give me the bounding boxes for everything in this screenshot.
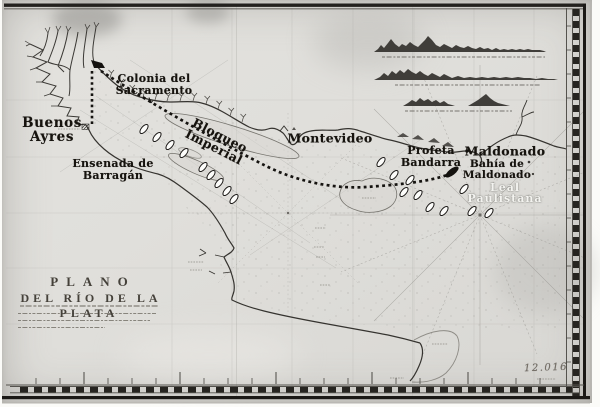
profile-ridge-3a bbox=[403, 98, 455, 106]
scanned-nautical-chart: Colonia del Sacramento Buenos Ayres Ense… bbox=[0, 0, 600, 407]
label-buenos-ayres: Buenos Ayres bbox=[22, 116, 82, 144]
label-ensenada-de-barragan: Ensenada de Barragán bbox=[72, 158, 153, 182]
label-profeta-bandarra: Profeta Bandarra bbox=[401, 145, 461, 169]
cape-shoal-outline bbox=[412, 331, 459, 383]
sheet-number: 12.016 bbox=[524, 362, 568, 375]
label-colonia-del-sacramento: Colonia del Sacramento bbox=[116, 73, 193, 97]
map-title-line1: PLANO bbox=[10, 274, 168, 290]
profile-ridge-2 bbox=[374, 69, 558, 80]
colonia-marker bbox=[91, 60, 105, 68]
label-maldonado: Maldonado bbox=[465, 145, 546, 158]
label-montevideo: Montevideo bbox=[287, 132, 372, 145]
title-block: PLANO DEL RÍO DE LA PLATA bbox=[10, 274, 168, 321]
label-bahia-de-maldonado: Bahía de Maldonado bbox=[463, 159, 531, 181]
buenos-ayres-city-marker bbox=[82, 124, 89, 130]
profile-ridge-1 bbox=[374, 36, 546, 52]
watermark-text: Leal Paulistana bbox=[468, 182, 543, 204]
map-title-line2: DEL RÍO DE LA PLATA bbox=[10, 291, 168, 321]
parana-delta bbox=[25, 22, 99, 125]
